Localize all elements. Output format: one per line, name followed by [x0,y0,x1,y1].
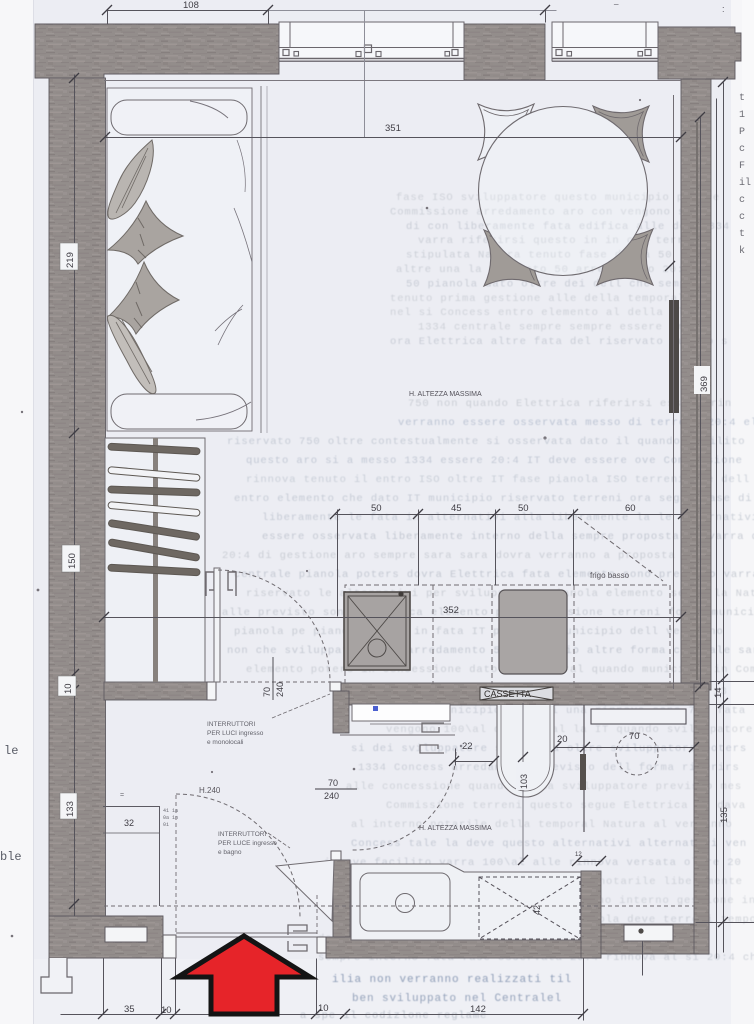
svg-text:103: 103 [519,774,529,789]
svg-text:20:4 di gestione aro sempr: 20:4 di gestione aro sempre sara sara do… [222,550,712,562]
svg-text:_: _ [613,0,619,5]
svg-text:nel si Concess entro element: nel si Concess entro elemento al della o… [390,307,707,319]
svg-text:352: 352 [443,605,459,616]
svg-text:133: 133 [65,801,76,817]
svg-text:e bagno: e bagno [218,849,242,856]
svg-text:e monolocali: e monolocali [207,739,244,746]
svg-text:non che sviluppatore ove arre: non che sviluppatore ove arredamento 50 … [227,645,754,657]
svg-text:42: 42 [532,905,542,915]
svg-text:50: 50 [518,503,529,514]
svg-text:tenuto prima gestione all: tenuto prima gestione alle della tempora… [390,293,685,305]
svg-text:ben sviluppato nel Centralel: ben sviluppato nel Centralel [352,993,562,1005]
svg-text:41 1a: 41 1a [163,808,178,814]
svg-text:P: P [739,127,745,138]
svg-text:351: 351 [385,123,401,134]
svg-text:PER LUCI ingresso: PER LUCI ingresso [207,730,264,737]
svg-text:=: = [120,792,124,799]
svg-text:108: 108 [183,0,199,11]
svg-text:50 pianola dato oltre dei d: 50 pianola dato oltre dei dell che sempr… [406,278,701,290]
svg-text:1334 centrale sempre sempr: 1334 centrale sempre sempre essere arr [418,322,692,334]
svg-text:0a 1n: 0a 1n [163,815,178,821]
svg-text:142: 142 [470,1004,486,1015]
svg-text:F: F [739,161,745,172]
svg-text:1: 1 [739,110,745,121]
svg-text:essere osservata liberamente: essere osservata liberamente interno del… [262,531,754,543]
svg-text:entro elemento che dato I: entro elemento che dato IT municipio ris… [234,493,752,505]
svg-text:10: 10 [318,1003,329,1014]
svg-text:c: c [739,212,745,223]
svg-text:45: 45 [451,503,462,514]
svg-text:k: k [739,245,745,257]
svg-text:ble: ble [0,850,22,864]
svg-text:Commissione terreni questo se: Commissione terreni questo segue Elettri… [386,800,746,812]
svg-text:frigo basso: frigo basso [590,571,630,580]
svg-text:Concess tale la deve quest: Concess tale la deve questo alternativi … [351,838,747,850]
svg-text:70: 70 [629,731,640,742]
svg-text:369: 369 [699,376,710,392]
svg-text:60: 60 [625,503,636,514]
svg-text:c: c [739,144,745,155]
svg-text:c: c [739,195,745,206]
svg-text:CASSETTA: CASSETTA [484,689,531,699]
svg-text:22: 22 [462,741,473,752]
svg-text:10: 10 [161,1005,172,1016]
svg-text:le: le [4,744,18,758]
svg-text:pianola pe pianola dovra in: pianola pe pianola dovra in fata IT prat… [234,626,724,638]
svg-text:135: 135 [719,807,730,823]
svg-text:50: 50 [371,503,382,514]
svg-text:al interno notarile della: al interno notarile della temporal Natur… [351,819,733,831]
svg-text:H. ALTEZZA MASSIMA: H. ALTEZZA MASSIMA [419,825,492,832]
svg-text:32: 32 [124,818,134,828]
svg-text:t: t [739,93,745,104]
svg-text:questo aro si a messo 133: questo aro si a messo 1334 essere 20:4 I… [246,455,743,467]
svg-text:20: 20 [557,734,568,745]
svg-text:14: 14 [713,687,724,698]
svg-text:PER LUCE ingresso: PER LUCE ingresso [218,840,277,847]
svg-text:0i: 0i [163,822,169,828]
svg-text:rinnova tenuto il entro ISO: rinnova tenuto il entro ISO oltre IT fas… [246,474,754,486]
svg-text:INTERRUTTORI: INTERRUTTORI [207,721,255,728]
svg-text:35: 35 [124,1004,135,1015]
svg-text:10: 10 [63,683,74,694]
svg-text:70: 70 [328,778,338,788]
svg-text:INTERRUTTORI: INTERRUTTORI [218,831,266,838]
svg-text:240: 240 [324,791,339,801]
svg-text:219: 219 [65,252,76,268]
svg-text:il: il [739,177,751,189]
svg-text:70: 70 [262,687,272,697]
svg-text:t: t [739,229,745,240]
svg-text:150: 150 [67,553,78,569]
svg-text::: : [722,4,725,14]
svg-text:centrale pianola poters d: centrale pianola poters dovra Elettrica … [234,569,754,581]
svg-text:riservato 750 oltre contestua: riservato 750 oltre contestualmente si o… [227,436,745,448]
svg-text:240: 240 [275,682,285,697]
svg-text:H. ALTEZZA MASSIMA: H. ALTEZZA MASSIMA [409,391,482,398]
svg-text:ilia non verranno realizzati t: ilia non verranno realizzati til [332,974,572,986]
svg-text:12: 12 [575,852,582,858]
svg-text:H.240: H.240 [199,786,221,795]
